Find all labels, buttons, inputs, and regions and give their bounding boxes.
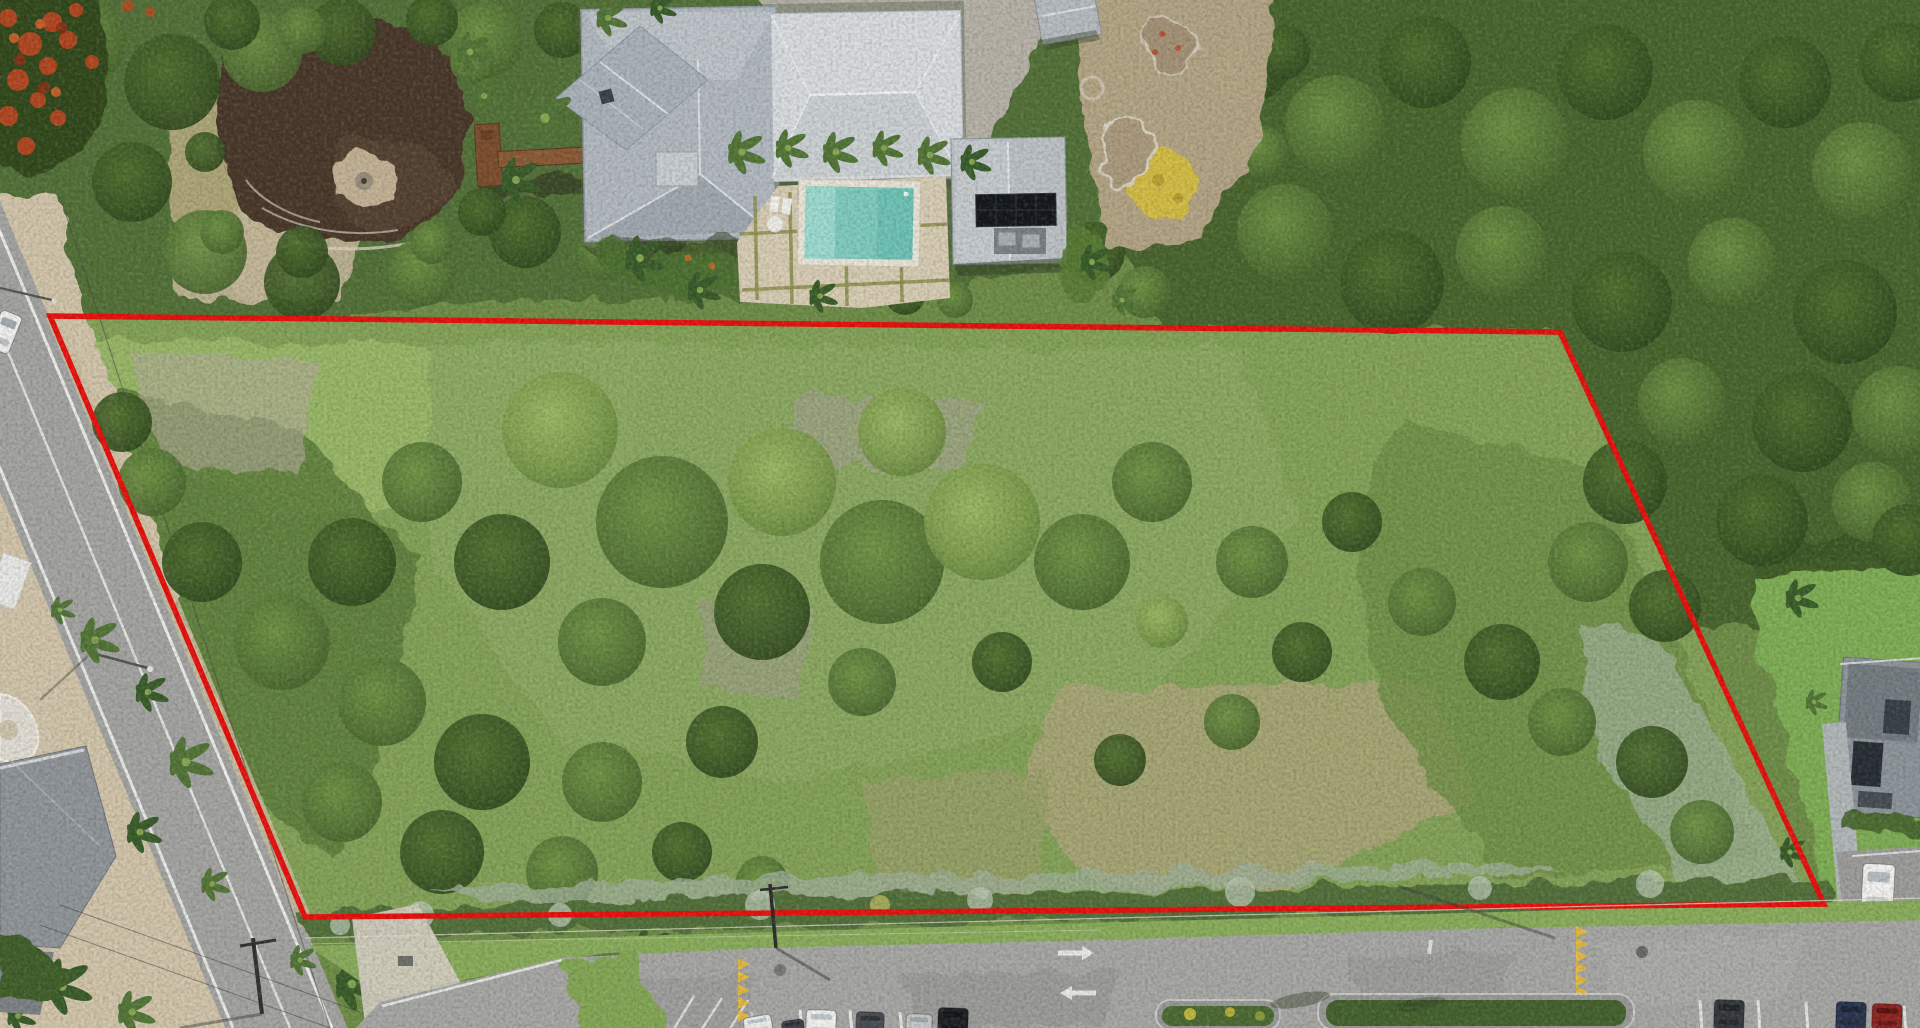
aerial-photo bbox=[0, 0, 1920, 1028]
aerial-photo-canvas bbox=[0, 0, 1920, 1028]
photo-grain-light bbox=[0, 0, 1920, 1028]
